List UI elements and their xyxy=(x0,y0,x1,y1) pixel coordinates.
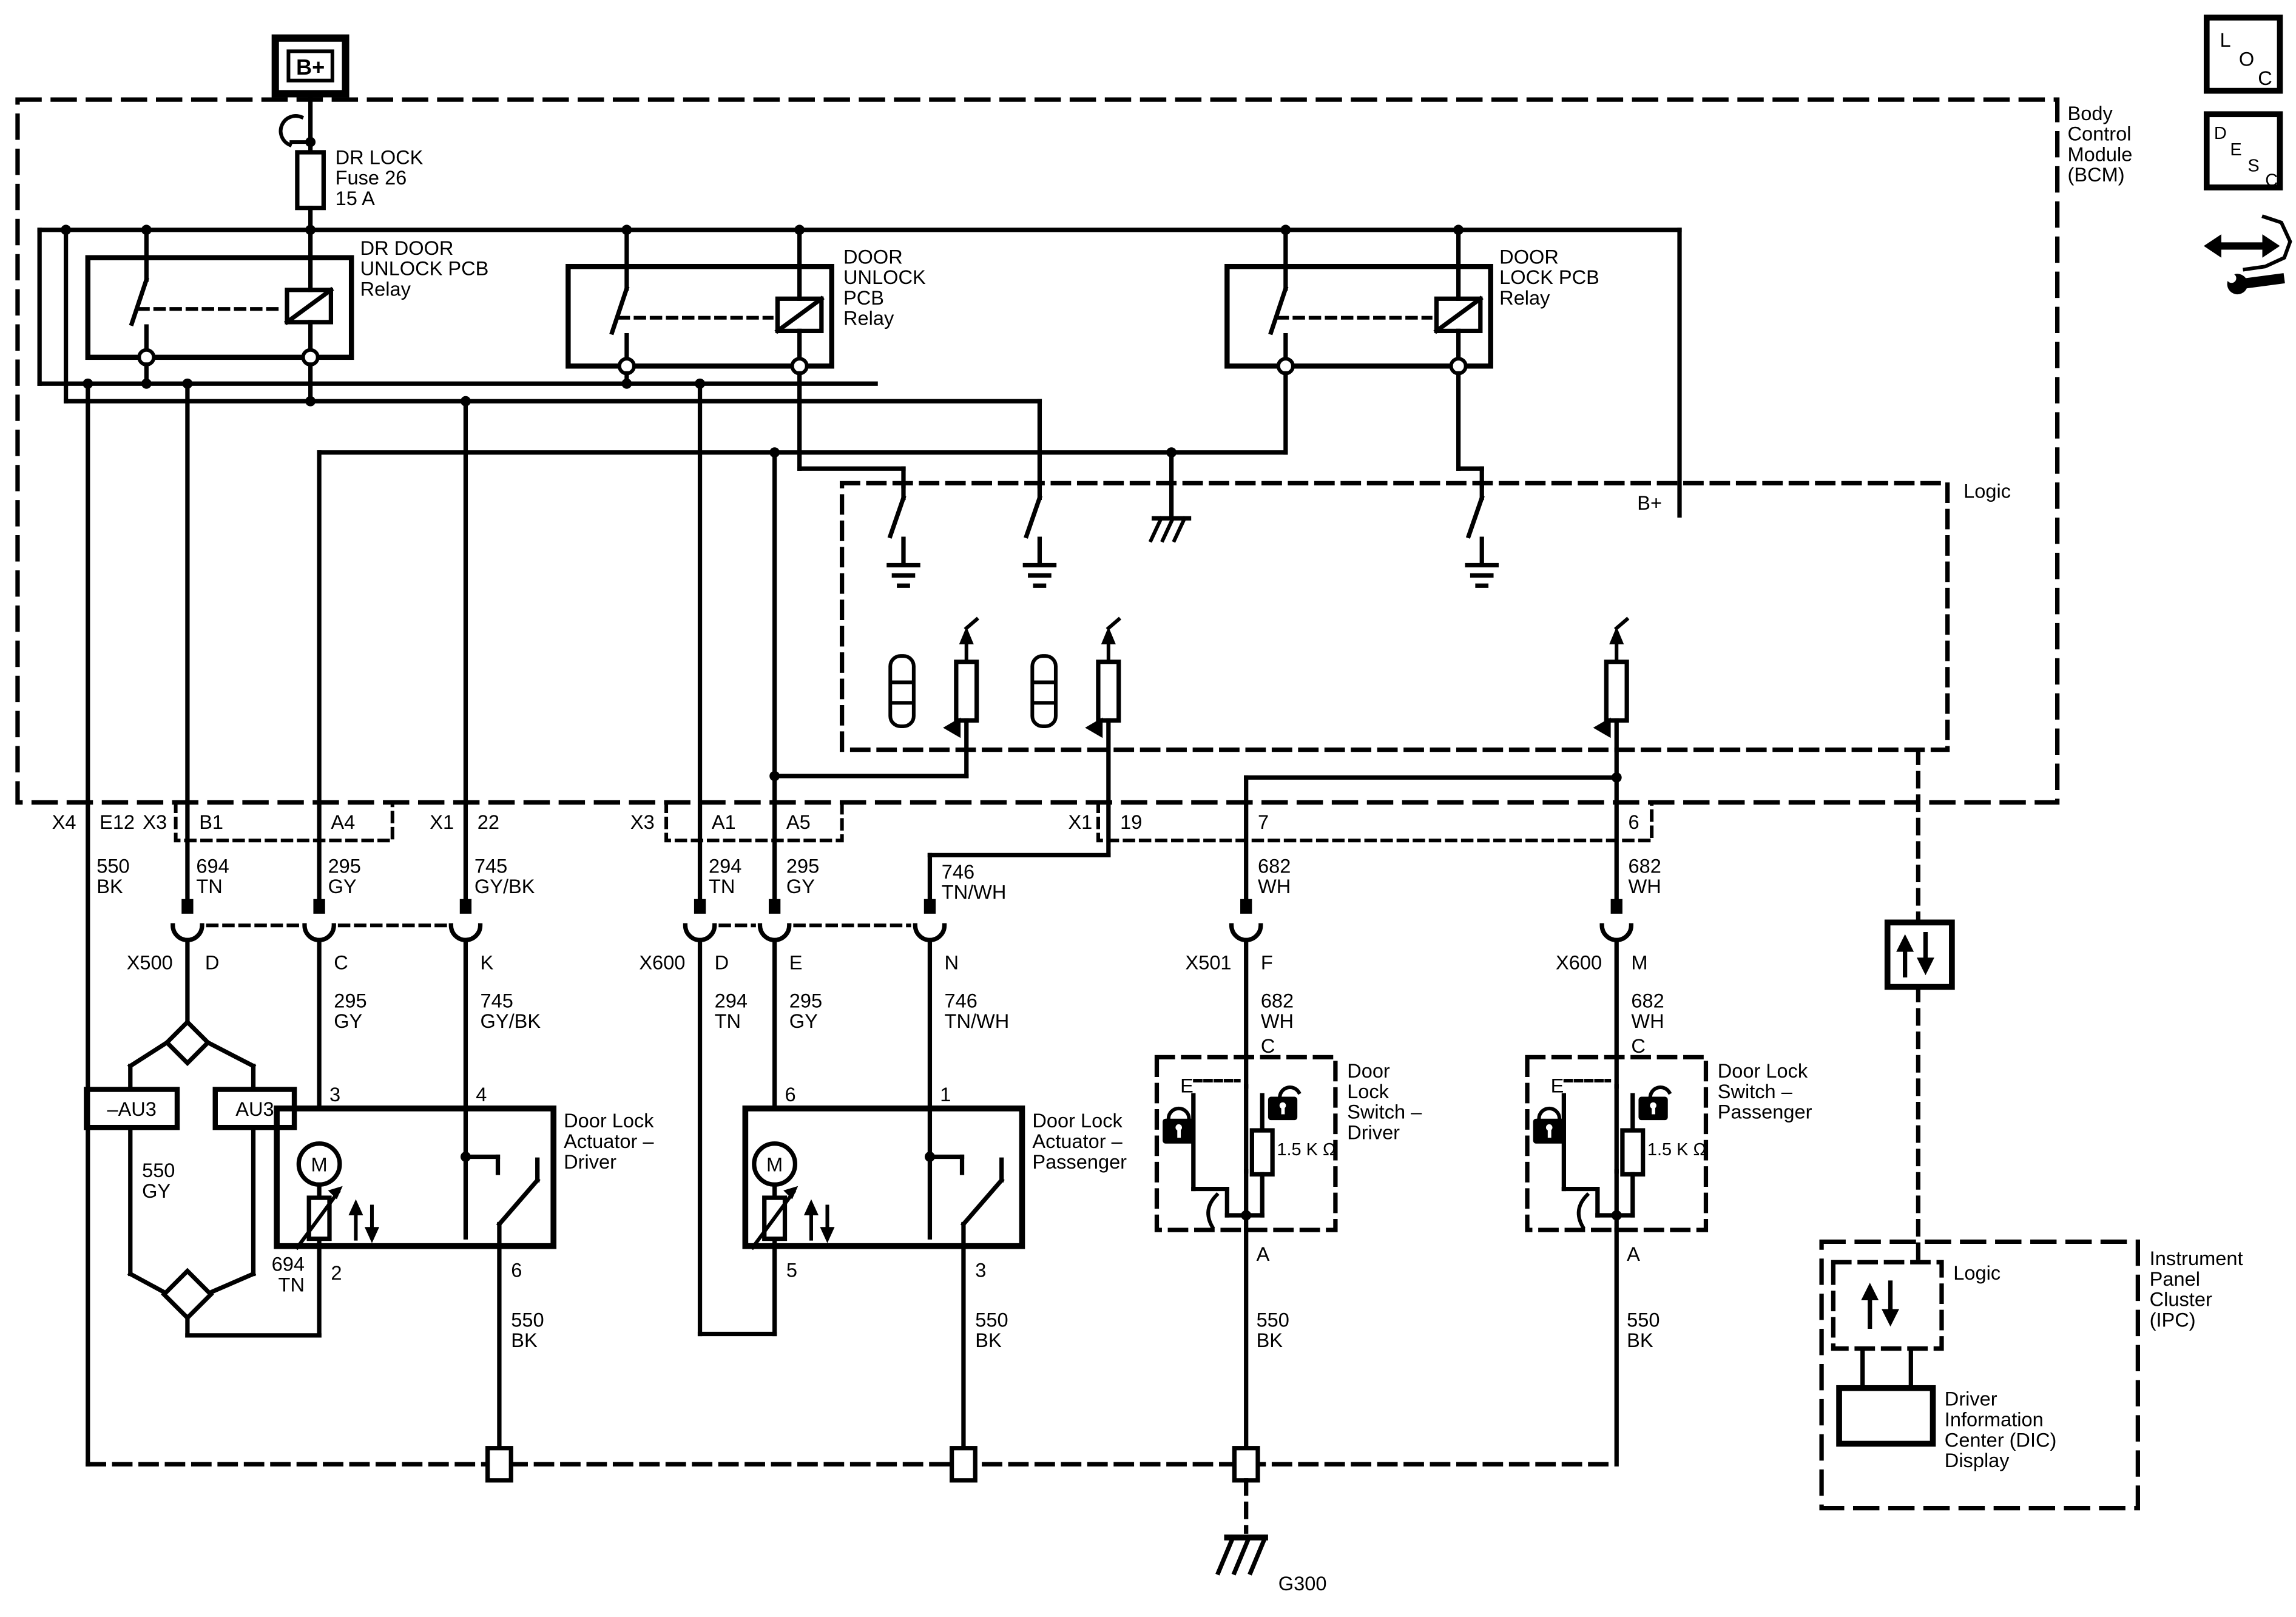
actuator-driver-label: Actuator – xyxy=(564,1130,654,1152)
ipc-label-line: Cluster xyxy=(2150,1289,2212,1311)
connector-pin-label: D xyxy=(205,952,220,974)
connector-pin-label: C xyxy=(1261,1035,1275,1057)
connector-terminal xyxy=(915,899,944,1109)
wire-label: 550 xyxy=(142,1160,175,1181)
wire-label: BK xyxy=(1627,1329,1653,1351)
connector-label: X600 xyxy=(1556,952,1602,974)
diagnostic-link-wrench-icon xyxy=(2204,217,2290,294)
bcm-label-line: Body xyxy=(2068,103,2113,124)
fuse-label-line: Fuse 26 xyxy=(336,167,407,189)
relay-door-unlock: DOOR UNLOCK PCB Relay xyxy=(568,230,926,373)
relay-door-lock: DOOR LOCK PCB Relay xyxy=(1227,230,1599,373)
pin-label: X3 xyxy=(630,811,655,833)
connector-pin-label: K xyxy=(481,952,494,974)
sense-resistor xyxy=(956,662,977,721)
inline-connector-square xyxy=(952,1448,976,1480)
connector-pin-label: C xyxy=(334,952,348,974)
actuator-driver-label: Door Lock xyxy=(564,1110,654,1132)
wire-label: 550 xyxy=(511,1309,544,1331)
au3-label: AU3 xyxy=(235,1098,274,1120)
lock-icon xyxy=(1163,1109,1195,1144)
motor-letter: M xyxy=(311,1154,328,1176)
wire-label: 295 xyxy=(328,855,361,877)
wire-label: 294 xyxy=(715,990,748,1011)
loc-letter: L xyxy=(2220,29,2231,51)
fuse-symbol xyxy=(297,152,323,208)
relay1-label-line: UNLOCK PCB xyxy=(360,258,489,280)
loc-letter: O xyxy=(2239,49,2254,70)
bcm-pin-strips xyxy=(176,802,1652,840)
inline-connector-row: X500 D C K X600 D E N X501 F X600 M 295 … xyxy=(127,899,1664,1334)
sense-resistor xyxy=(1606,662,1627,721)
bcm-label-line: Control xyxy=(2068,123,2132,145)
up-down-arrows-icon xyxy=(1861,1283,1899,1326)
wire-label: 694 xyxy=(196,855,229,877)
sense-resistor xyxy=(1098,662,1119,721)
dic-label-line: Display xyxy=(1945,1450,2010,1471)
dic-label-line: Information xyxy=(1945,1409,2044,1431)
wire-label: 295 xyxy=(786,855,819,877)
wire-label: 682 xyxy=(1631,990,1664,1011)
up-down-arrows-icon xyxy=(1896,934,1934,976)
bcm-label-line: Module xyxy=(2068,143,2133,165)
wire-label: WH xyxy=(1261,1010,1294,1032)
pin-label: X4 xyxy=(52,811,76,833)
wire-label: BK xyxy=(1257,1329,1283,1351)
pin-label: X3 xyxy=(143,811,167,833)
relay2-label-line: DOOR xyxy=(843,246,903,268)
connector-pin-label: C xyxy=(1631,1035,1646,1057)
switch-arm-curve xyxy=(1579,1195,1587,1227)
pin-label: 19 xyxy=(1120,811,1142,833)
dic-display-box xyxy=(1839,1388,1933,1444)
motor-letter: M xyxy=(766,1154,783,1176)
ipc-label-line: Instrument xyxy=(2150,1247,2243,1269)
desc-letter: D xyxy=(2214,124,2227,143)
wire-label: 746 xyxy=(945,990,977,1011)
pin-number: 6 xyxy=(785,1084,796,1106)
switch-passenger-label: Door Lock xyxy=(1718,1060,1808,1082)
pin-label: A5 xyxy=(786,811,811,833)
wire-label: 550 xyxy=(1257,1309,1289,1331)
wire-label: 550 xyxy=(1627,1309,1660,1331)
ipc-logic-box xyxy=(1833,1262,1942,1348)
pin-number: 2 xyxy=(331,1262,342,1284)
wire-label: 682 xyxy=(1629,855,1661,877)
wire-label: TN/WH xyxy=(942,882,1007,903)
pin-letter: A xyxy=(1627,1243,1640,1265)
door-lock-actuator-passenger: 6 1 M Door Lock Actuator – Passenger 5 3… xyxy=(700,1084,1127,1448)
serial-data-link xyxy=(1888,750,1952,1263)
wire-label: GY xyxy=(334,1010,362,1032)
pin-label: A1 xyxy=(712,811,736,833)
relay1-label-line: Relay xyxy=(360,278,411,300)
left-arrowhead xyxy=(1085,717,1102,738)
connector-pin-label: M xyxy=(1631,952,1647,974)
b-plus-logic-label: B+ xyxy=(1637,492,1662,514)
connector-terminal xyxy=(685,899,714,1334)
switch-arm-curve xyxy=(1208,1195,1217,1227)
instrument-panel-cluster: Instrument Panel Cluster (IPC) Logic Dri… xyxy=(1822,1241,2243,1508)
actuator-passenger-label: Actuator – xyxy=(1032,1130,1123,1152)
wire-label: GY xyxy=(142,1180,171,1202)
wire-label: TN xyxy=(279,1274,305,1295)
door-lock-actuator-driver: 3 4 M Door Lock Actuator – Driver 2 6 55… xyxy=(277,1084,654,1448)
pin-number: 6 xyxy=(511,1259,522,1281)
pin-label: B1 xyxy=(199,811,223,833)
wire-label: GY xyxy=(789,1010,818,1032)
ground-distribution: G300 xyxy=(88,1448,1616,1595)
switch-driver-label: Door xyxy=(1347,1060,1390,1082)
connector-label: X600 xyxy=(639,952,685,974)
connector-terminal xyxy=(760,899,789,1109)
car-icon xyxy=(890,656,914,726)
wire-label: TN xyxy=(709,876,735,897)
up-down-arrows-icon xyxy=(804,1199,835,1243)
wire-label: GY/BK xyxy=(481,1010,541,1032)
actuator-passenger-label: Passenger xyxy=(1032,1151,1127,1173)
wire-label: GY xyxy=(328,876,357,897)
bcm-label-line: (BCM) xyxy=(2068,164,2125,186)
switch-resistor xyxy=(1252,1130,1272,1174)
pcb-bus-wiring xyxy=(39,365,1482,1464)
wiring-diagram-power-door-locks: Body Control Module (BCM) L O C D E S C … xyxy=(0,0,2296,1616)
wire-label: BK xyxy=(96,876,123,897)
chassis-ground-icon xyxy=(1151,518,1189,540)
b-plus-label: B+ xyxy=(296,55,325,79)
sense-branch-switches xyxy=(1246,619,1627,899)
wire-label: GY xyxy=(786,876,815,897)
pin-label: 7 xyxy=(1258,811,1269,833)
pin-label: E12 xyxy=(100,811,135,833)
wire-label: WH xyxy=(1631,1010,1664,1032)
dic-label-line: Center (DIC) xyxy=(1945,1429,2057,1451)
wire-label: 295 xyxy=(789,990,822,1011)
wire-label: TN xyxy=(715,1010,741,1032)
pin-number: 3 xyxy=(329,1084,340,1106)
pin-number: 3 xyxy=(975,1259,986,1281)
ipc-label-line: (IPC) xyxy=(2150,1309,2196,1331)
pin-label: A4 xyxy=(331,811,355,833)
wire-label: TN xyxy=(196,876,222,897)
au3-splice-loop: –AU3 AU3 550 GY 694 TN xyxy=(86,1022,319,1335)
switch-driver-label: Switch – xyxy=(1347,1101,1422,1123)
pin-number: 5 xyxy=(786,1259,797,1281)
resistor-value-label: 1.5 K Ω xyxy=(1277,1140,1335,1160)
wire-label: 294 xyxy=(709,855,741,877)
connector-pin-label: N xyxy=(945,952,959,974)
relay3-label-line: DOOR xyxy=(1499,246,1559,268)
car-icon xyxy=(1032,656,1056,726)
desc-letter: S xyxy=(2247,156,2259,175)
connector-pin-label: F xyxy=(1261,952,1273,974)
desc-letter: E xyxy=(2230,140,2241,160)
connector-pin-label: D xyxy=(715,952,729,974)
wire-label: 682 xyxy=(1258,855,1291,877)
desc-letter: C xyxy=(2265,170,2278,190)
wire-label: 745 xyxy=(481,990,513,1011)
unlock-icon xyxy=(1268,1087,1299,1120)
sense-branch-driver xyxy=(769,619,976,781)
resistor-value-label: 1.5 K Ω xyxy=(1647,1140,1706,1160)
wire-label: 682 xyxy=(1261,990,1294,1011)
connector-label: X500 xyxy=(127,952,173,974)
loc-letter: C xyxy=(2258,67,2272,89)
logic-sense-branches xyxy=(769,619,1627,899)
bcm-logic-box: Logic B+ xyxy=(842,481,2011,750)
switch-resistor xyxy=(1622,1130,1643,1174)
lock-icon xyxy=(1533,1109,1565,1144)
relay3-label-line: Relay xyxy=(1499,287,1550,309)
connector-terminal xyxy=(305,899,334,1109)
ipc-logic-label: Logic xyxy=(1953,1262,2001,1284)
relay3-label-line: LOCK PCB xyxy=(1499,266,1599,288)
relay-dr-door-unlock: DR DOOR UNLOCK PCB Relay xyxy=(88,230,489,365)
connector-terminal xyxy=(173,899,202,1034)
border-pin-labels: X4 E12 X3 B1 A4 X1 22 X3 A1 A5 X1 19 7 6 xyxy=(52,811,1639,833)
connector-label: X501 xyxy=(1185,952,1231,974)
wire-label: 694 xyxy=(272,1254,305,1275)
harness-wire-labels: 550 BK 694 TN 295 GY 745 GY/BK 294 TN 29… xyxy=(96,855,1661,903)
pin-number: 4 xyxy=(476,1084,487,1106)
inline-connector-square xyxy=(1234,1448,1258,1480)
left-arrowhead xyxy=(943,717,961,738)
door-lock-switch-driver: E 1.5 K Ω Door Lock Switch – Driver xyxy=(1156,1057,1422,1448)
dic-label-line: Driver xyxy=(1945,1388,1997,1410)
relay2-label-line: PCB xyxy=(843,287,884,309)
relay1-label-line: DR DOOR xyxy=(360,237,454,259)
ipc-label-line: Panel xyxy=(2150,1268,2200,1290)
wire-label: TN/WH xyxy=(945,1010,1010,1032)
actuator-driver-label: Driver xyxy=(564,1151,616,1173)
splice-diamond xyxy=(167,1022,208,1063)
pin-letter: A xyxy=(1257,1243,1270,1265)
wire-label: GY/BK xyxy=(474,876,535,897)
wire-label: 550 xyxy=(96,855,129,877)
wire-label: WH xyxy=(1258,876,1291,897)
battery-feed: B+ DR LOCK Fuse 26 15 A xyxy=(275,38,424,230)
relay2-label-line: UNLOCK xyxy=(843,266,926,288)
logic-label: Logic xyxy=(1963,481,2011,502)
switch-passenger-label: Passenger xyxy=(1718,1101,1812,1123)
splice-diamond xyxy=(164,1271,211,1318)
fuse-label-line: 15 A xyxy=(336,187,375,209)
switch-driver-label: Driver xyxy=(1347,1122,1400,1144)
actuator-passenger-label: Door Lock xyxy=(1032,1110,1123,1132)
wire-label: WH xyxy=(1629,876,1661,897)
wire-label: 550 xyxy=(975,1309,1008,1331)
g300-label: G300 xyxy=(1278,1573,1327,1595)
switch-driver-label: Lock xyxy=(1347,1081,1389,1102)
fuse-label-line: DR LOCK xyxy=(336,146,424,168)
pin-label: X1 xyxy=(430,811,454,833)
unlock-icon xyxy=(1638,1087,1669,1120)
switch-passenger-label: Switch – xyxy=(1718,1081,1793,1102)
pin-label: X1 xyxy=(1068,811,1092,833)
pin-label: 22 xyxy=(478,811,499,833)
pin-number: 1 xyxy=(940,1084,951,1106)
g300-ground-icon xyxy=(1218,1538,1268,1573)
door-lock-switch-passenger: E 1.5 K Ω Door Lock Switch – Passenger xyxy=(1527,1057,1812,1464)
relay2-label-line: Relay xyxy=(843,308,894,329)
wire-label: 745 xyxy=(474,855,507,877)
au3-minus-label: –AU3 xyxy=(107,1098,156,1120)
logic-driver-switches xyxy=(889,486,1497,586)
wire-label: 746 xyxy=(942,861,974,883)
connector-pin-label: E xyxy=(789,952,803,974)
inline-connector-square xyxy=(488,1448,512,1480)
wire-label: BK xyxy=(511,1329,538,1351)
up-down-arrows-icon xyxy=(348,1199,379,1243)
loc-icon: L O C xyxy=(2207,18,2280,91)
serial-data-box xyxy=(1888,922,1952,987)
connector-terminal xyxy=(451,899,480,1109)
pin-label: 6 xyxy=(1629,811,1639,833)
desc-icon: D E S C xyxy=(2207,114,2280,190)
wire-label: 295 xyxy=(334,990,366,1011)
wire-label: BK xyxy=(975,1329,1002,1351)
left-arrowhead xyxy=(1593,717,1611,738)
